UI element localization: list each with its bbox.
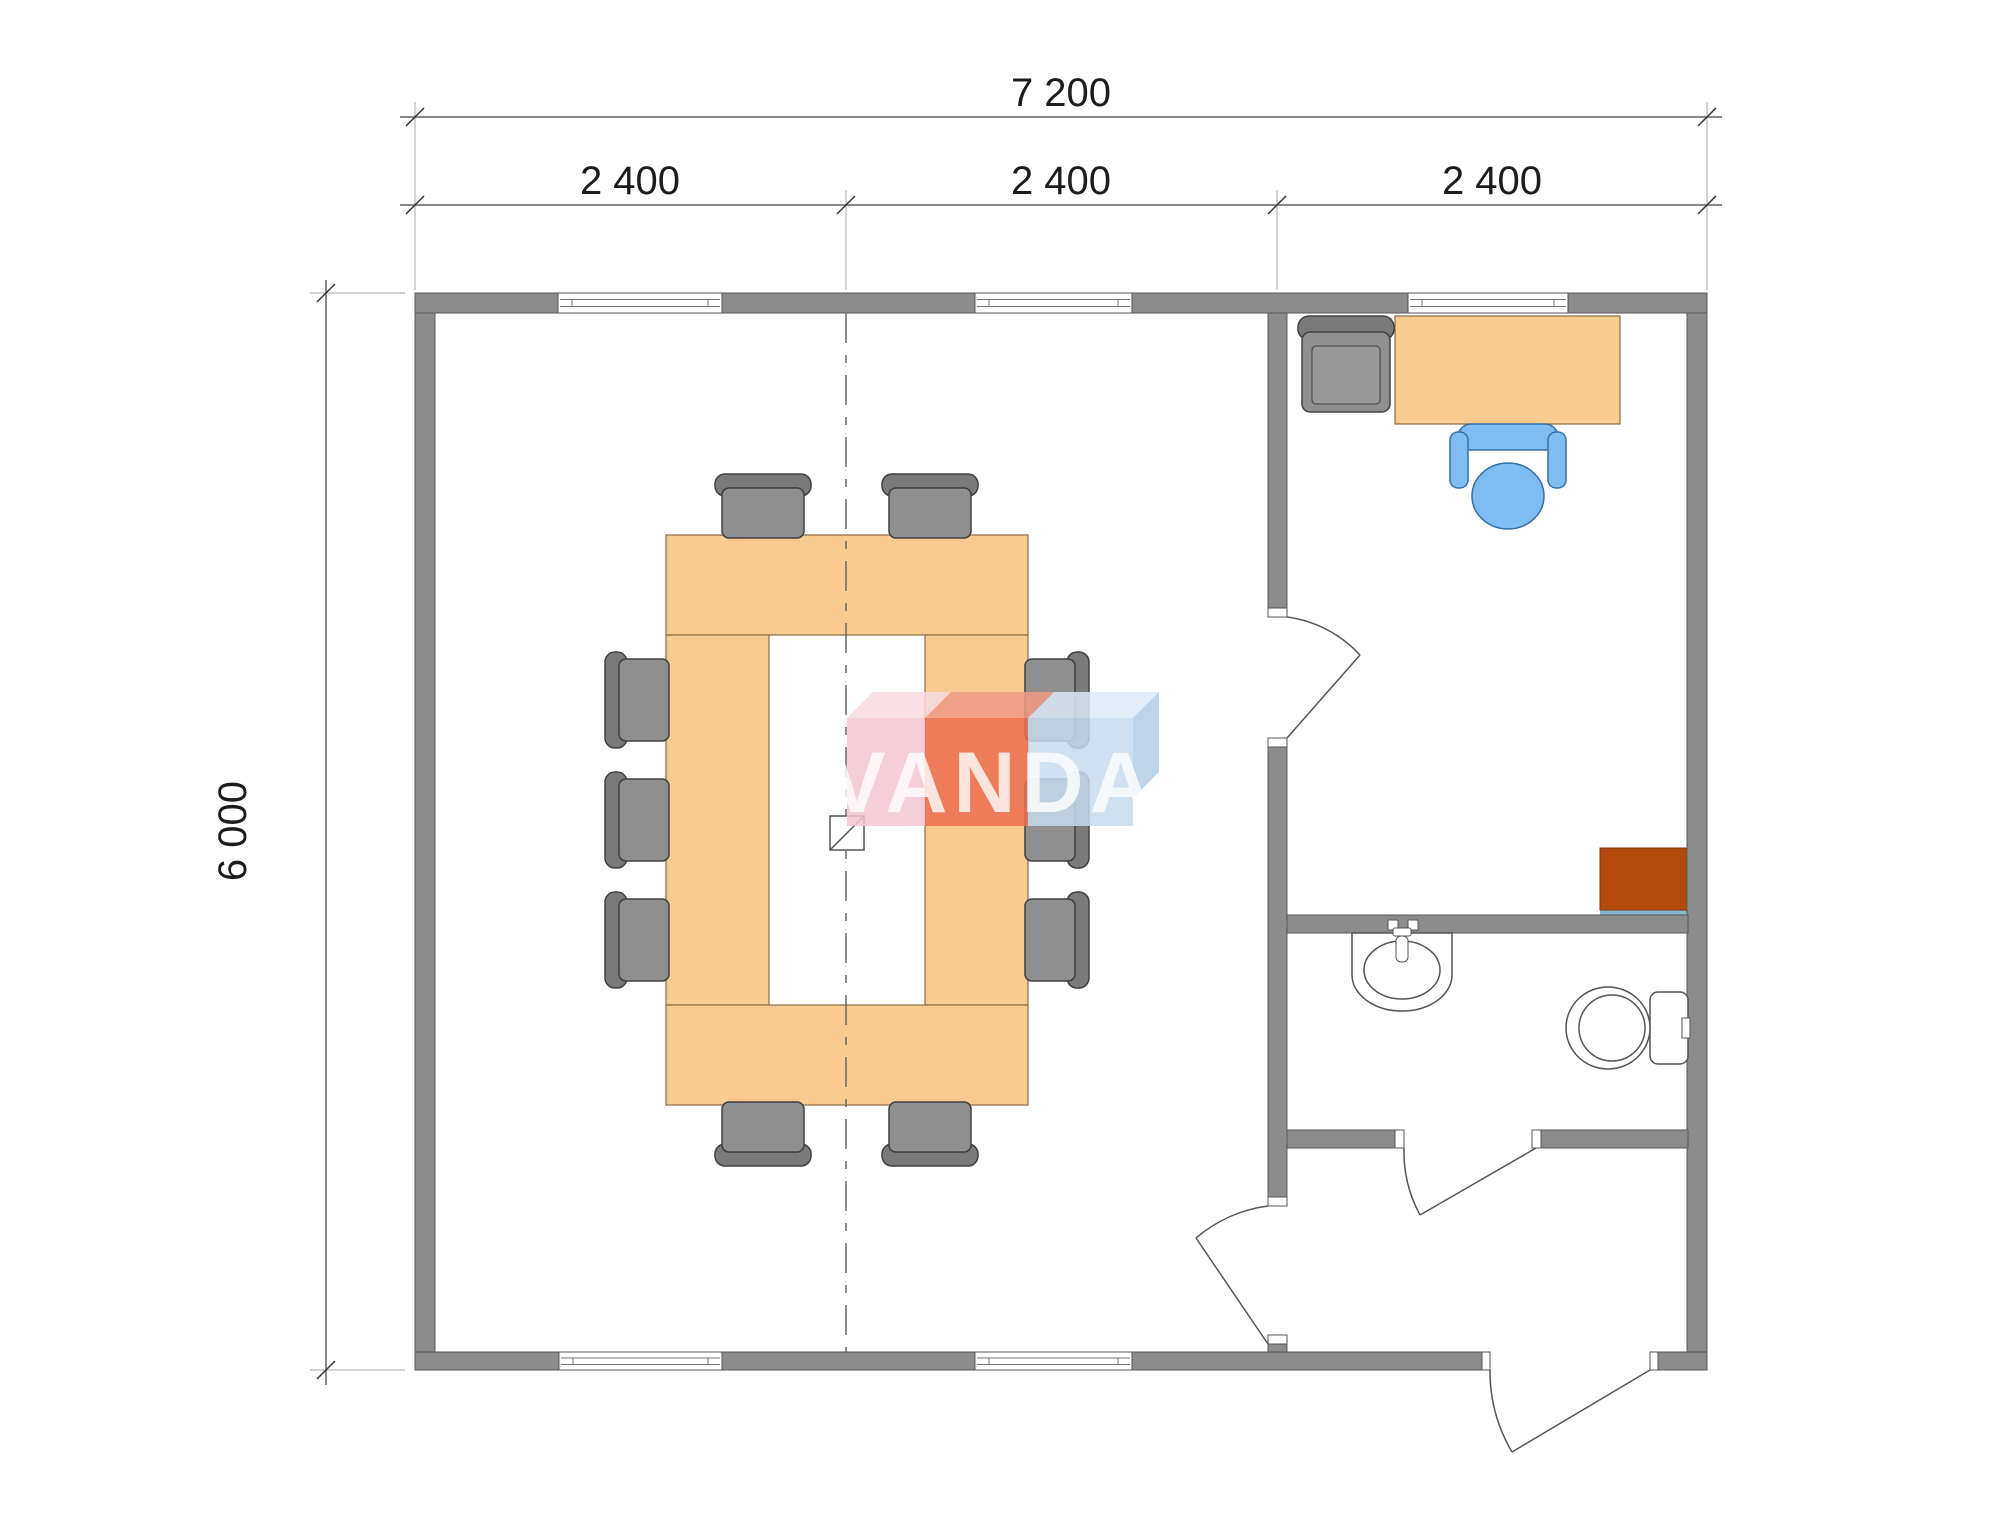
brown-cabinet: [1600, 848, 1688, 910]
meeting-chair: [715, 1102, 811, 1166]
wall-segment-right: [1687, 293, 1707, 1370]
wall-partition-horizontal: [1541, 1130, 1688, 1148]
office-armchair: [1298, 316, 1394, 412]
dimension-label-bay-3: 2 400: [1442, 159, 1542, 203]
vanda-watermark: VANDA: [828, 692, 1159, 831]
cabinet-shadow: [1600, 910, 1688, 915]
dimension-label-bay-2: 2 400: [1011, 159, 1111, 203]
table-bottom-band: [666, 1005, 1028, 1105]
wall-segment-left: [415, 293, 435, 1370]
meeting-chair: [605, 892, 669, 988]
wall-segment-top: [1568, 293, 1707, 313]
wall-segment-bottom: [722, 1352, 975, 1370]
wall-partition-horizontal: [1287, 1130, 1395, 1148]
wall-partition-vertical: [1268, 1344, 1287, 1352]
dimension-label-height: 6 000: [211, 781, 255, 881]
meeting-chair: [882, 1102, 978, 1166]
wall-segment-bottom: [1658, 1352, 1707, 1370]
bathroom-door: [1404, 1148, 1536, 1215]
wall-segment-top: [1132, 293, 1408, 313]
meeting-chair: [715, 474, 811, 538]
dimension-label-bay-1: 2 400: [580, 159, 680, 203]
table-left-arm: [666, 635, 769, 1005]
wall-segment-bottom: [1132, 1352, 1482, 1370]
dimension-label-total-width: 7 200: [1011, 71, 1111, 115]
wall-segment-bottom: [415, 1352, 559, 1370]
wall-segment-top: [722, 293, 975, 313]
wash-basin: [1352, 920, 1452, 1011]
meeting-chair: [605, 772, 669, 868]
table-top-band: [666, 535, 1028, 635]
wall-partition-vertical: [1268, 747, 1287, 1197]
toilet: [1566, 987, 1690, 1069]
office-desk: [1395, 316, 1620, 424]
watermark-text: VANDA: [828, 735, 1157, 831]
office-door: [1287, 617, 1360, 738]
window: [558, 293, 722, 313]
floor-plan-drawing: VANDA 7 20: [0, 0, 2000, 1516]
window: [1408, 293, 1568, 313]
floor-plan-canvas: VANDA 7 20: [0, 0, 2000, 1516]
meeting-chair: [605, 652, 669, 748]
wall-segment-top: [415, 293, 558, 313]
blue-desk-chair: [1450, 424, 1566, 529]
wall-partition-horizontal: [1287, 915, 1688, 933]
wall-partition-vertical: [1268, 313, 1287, 608]
meeting-chair: [882, 474, 978, 538]
window: [975, 1352, 1132, 1370]
entrance-door: [1490, 1370, 1650, 1452]
meeting-room-door: [1196, 1206, 1268, 1344]
meeting-chair: [1025, 892, 1089, 988]
window: [559, 1352, 722, 1370]
window: [975, 293, 1132, 313]
